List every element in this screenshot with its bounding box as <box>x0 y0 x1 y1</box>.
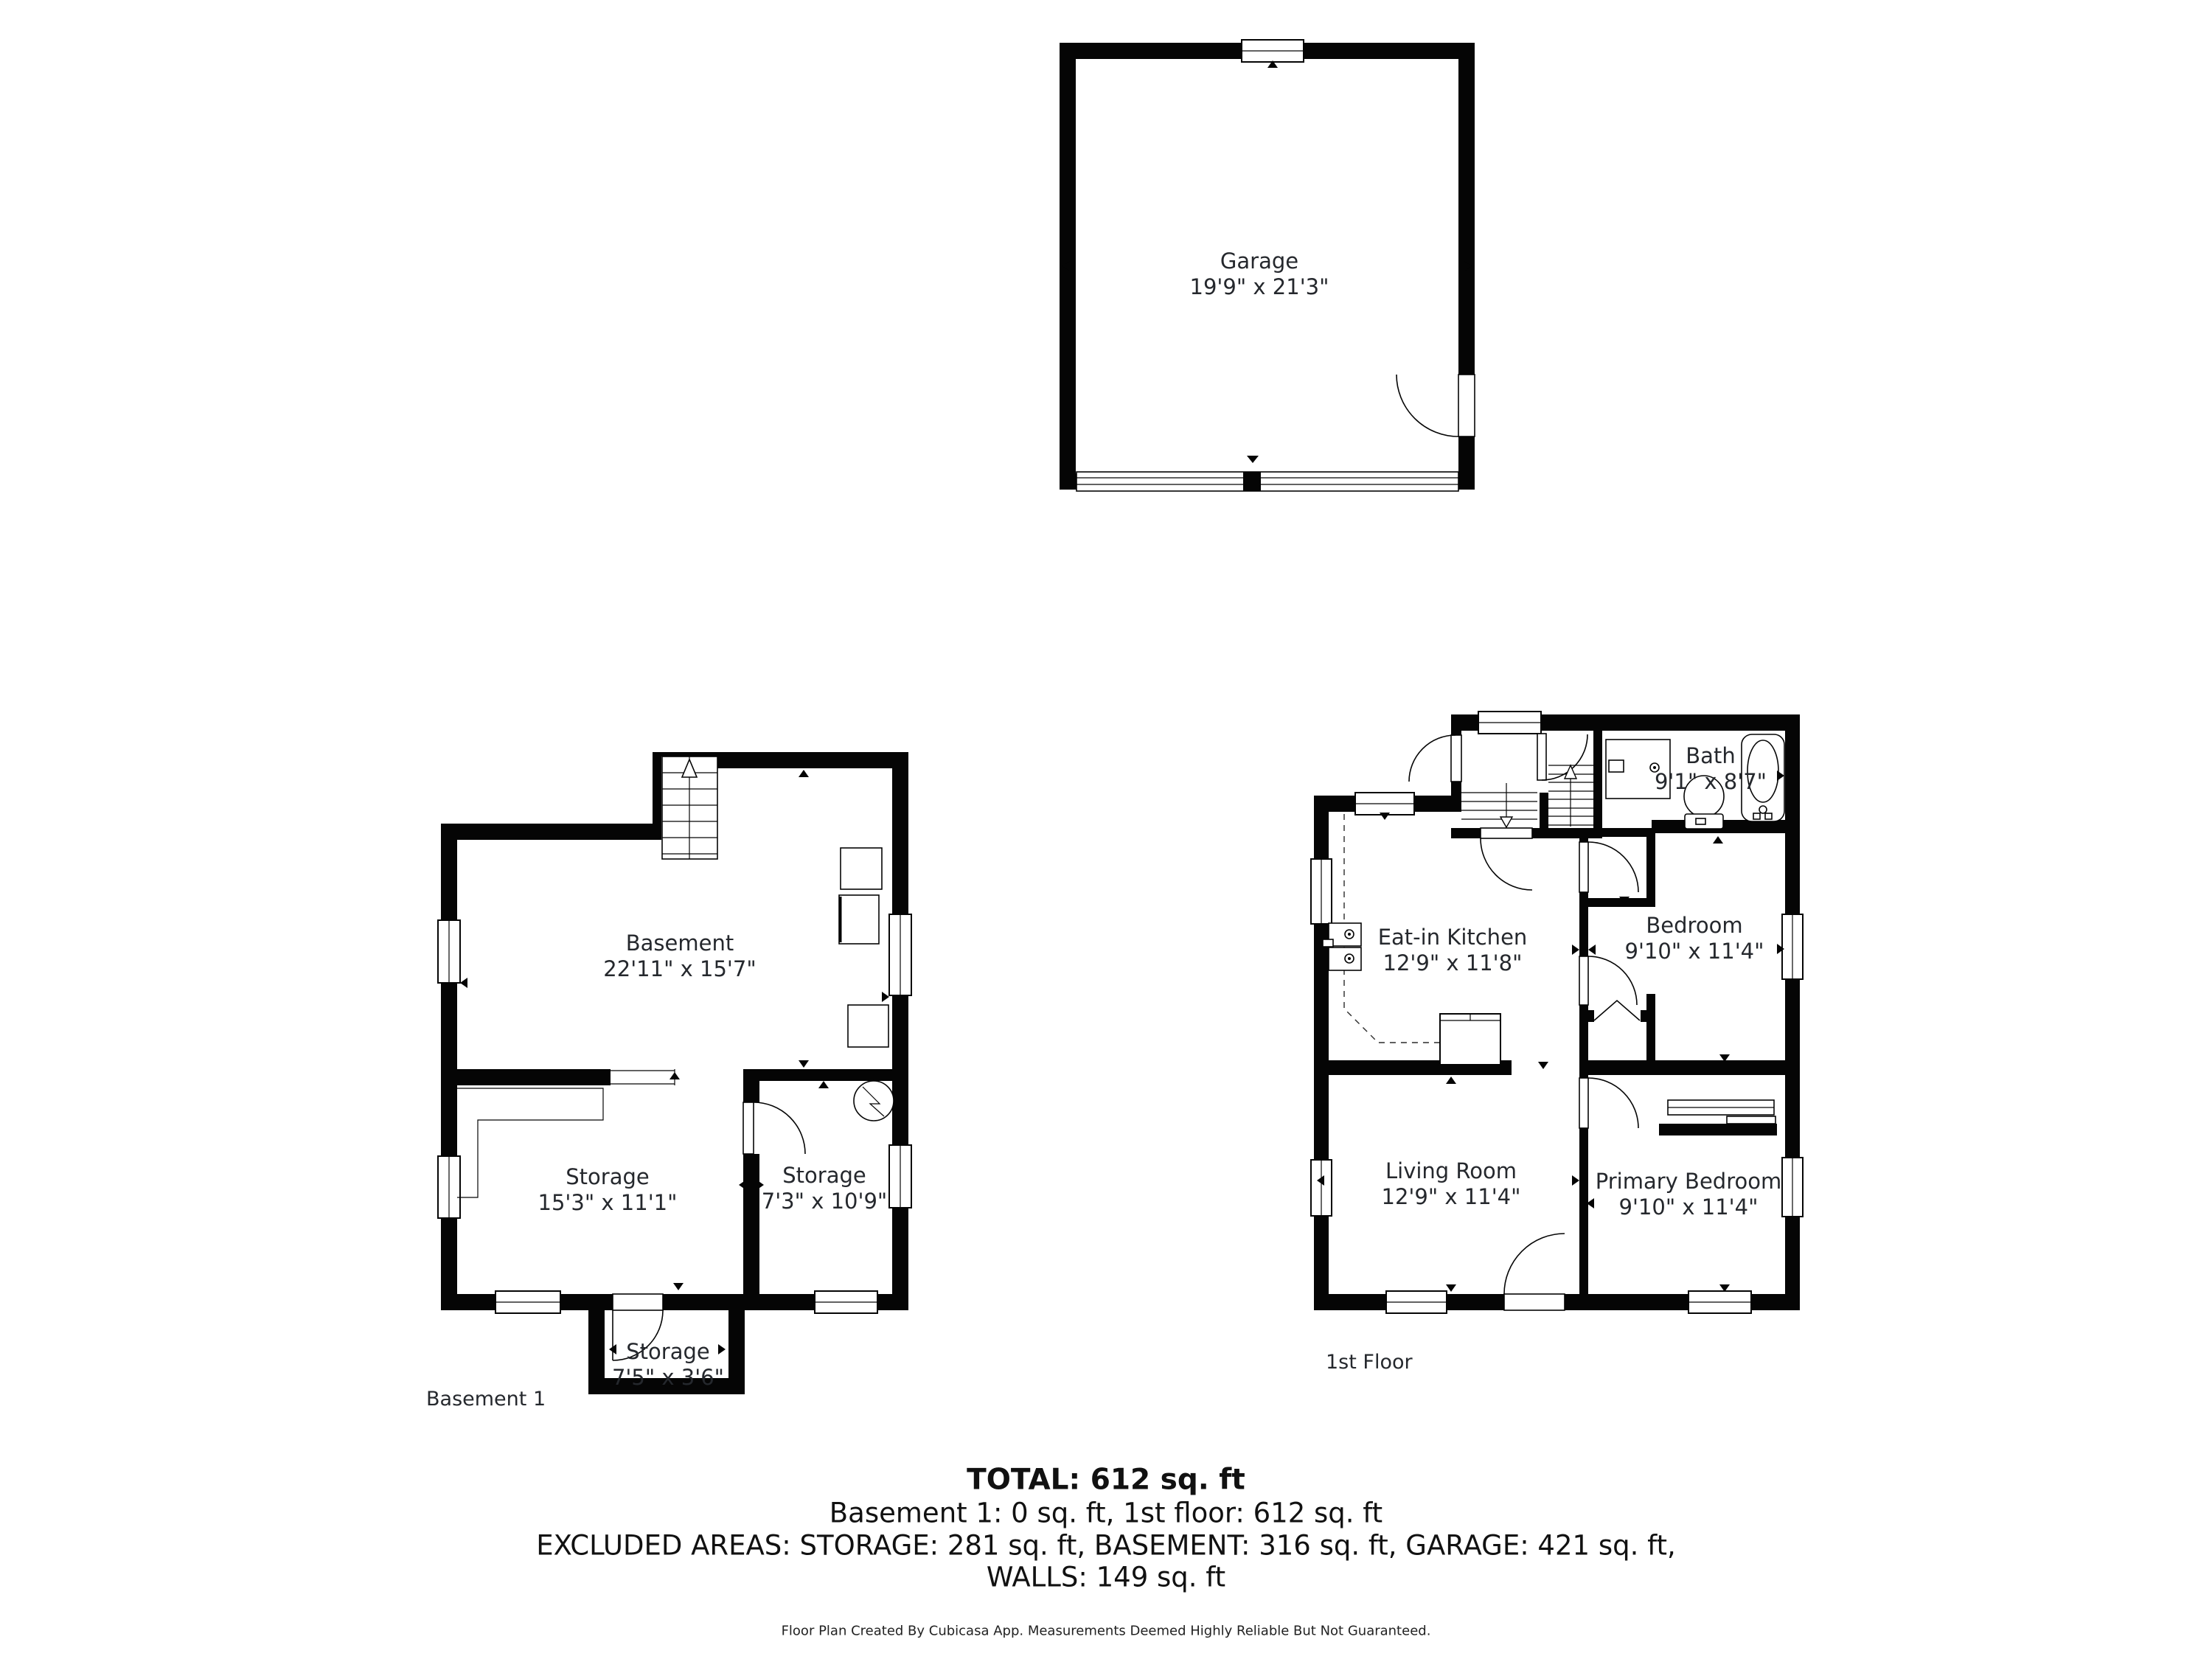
measure-tick <box>1572 945 1579 955</box>
summary-total: TOTAL: 612 sq. ft <box>0 1464 2212 1497</box>
room-label-kitchen: Eat-in Kitchen 12'9" x 11'8" <box>1378 925 1528 976</box>
floor-title-first-floor: 1st Floor <box>1326 1351 1413 1374</box>
floor-title-basement: Basement 1 <box>426 1388 546 1411</box>
front-door-icon <box>1409 735 1461 782</box>
measure-tick <box>1247 456 1259 463</box>
basement-window-icon <box>438 1156 460 1218</box>
window-icon <box>1688 1291 1751 1313</box>
stairs-down-icon <box>1461 783 1537 827</box>
window-icon <box>1355 793 1414 815</box>
measure-tick <box>669 1072 680 1079</box>
room-dims: 22'11" x 15'7" <box>603 956 756 982</box>
room-dims: 19'9" x 21'3" <box>1190 274 1329 300</box>
measure-tick <box>1380 813 1390 820</box>
room-label-storage-a: Storage 15'3" x 11'1" <box>538 1164 678 1216</box>
room-name: Living Room <box>1382 1158 1521 1184</box>
basement-window-icon <box>815 1291 877 1313</box>
room-dims: 9'1" x 8'7" <box>1655 769 1767 795</box>
room-name: Basement <box>603 931 756 956</box>
basement-window-icon <box>889 1145 911 1208</box>
summary-floors: Basement 1: 0 sq. ft, 1st floor: 612 sq.… <box>0 1498 2212 1529</box>
room-dims: 9'10" x 11'4" <box>1596 1194 1781 1220</box>
window-icon <box>1478 712 1541 734</box>
room-name: Storage <box>538 1164 678 1190</box>
living-room-exterior-door-icon <box>1504 1234 1565 1310</box>
measure-tick <box>1572 1175 1579 1186</box>
measure-tick <box>1446 1077 1456 1084</box>
measure-tick <box>739 1180 746 1190</box>
appliance-boxes <box>839 848 888 1047</box>
basement-stairs-icon <box>662 757 717 859</box>
cased-opening <box>611 1069 675 1085</box>
room-dims: 7'3" x 10'9" <box>762 1189 887 1214</box>
first-floor-plan <box>1311 712 1803 1313</box>
bifold-closet-door-icon <box>1588 1001 1646 1022</box>
room-label-storage-b: Storage 7'3" x 10'9" <box>762 1163 887 1214</box>
measure-tick <box>1588 945 1596 955</box>
room-label-basement: Basement 22'11" x 15'7" <box>603 931 756 982</box>
room-dims: 9'10" x 11'4" <box>1625 939 1764 964</box>
measure-tick <box>882 992 889 1002</box>
room-name: Storage <box>612 1339 724 1365</box>
measure-tick <box>673 1283 684 1290</box>
window-icon <box>1311 859 1332 924</box>
floor-plan-drawing <box>0 0 2212 1659</box>
room-name: Bath <box>1655 743 1767 769</box>
kitchen-island-icon <box>1440 1014 1500 1065</box>
room-name: Storage <box>762 1163 887 1189</box>
window-icon <box>1311 1160 1332 1216</box>
primary-bedroom-door-icon <box>1579 1078 1638 1128</box>
window-icon <box>1386 1291 1447 1313</box>
vestibule-door-icon <box>1537 734 1587 780</box>
storage-door-icon <box>743 1102 805 1154</box>
closet-shelf-icon <box>1668 1100 1775 1124</box>
room-name: Bedroom <box>1625 913 1764 939</box>
measure-tick <box>460 978 467 988</box>
garage-door-icon <box>1077 472 1458 491</box>
room-label-garage: Garage 19'9" x 21'3" <box>1190 248 1329 300</box>
summary-walls: WALLS: 149 sq. ft <box>0 1562 2212 1593</box>
measure-tick <box>1538 1062 1548 1069</box>
floor-plan-sheet: Garage 19'9" x 21'3" Basement 22'11" x 1… <box>0 0 2212 1659</box>
room-label-bath: Bath 9'1" x 8'7" <box>1655 743 1767 795</box>
measure-tick <box>1713 836 1723 844</box>
garage-top-window-icon <box>1242 40 1304 62</box>
kitchen-sink-icon <box>1323 923 1361 970</box>
room-dims: 12'9" x 11'8" <box>1378 950 1528 976</box>
attribution-note: Floor Plan Created By Cubicasa App. Meas… <box>0 1624 2212 1639</box>
water-heater-icon <box>854 1081 894 1121</box>
kitchen-door-icon <box>1481 828 1532 890</box>
room-label-living-room: Living Room 12'9" x 11'4" <box>1382 1158 1521 1210</box>
basement-window-icon <box>438 920 460 983</box>
stairs-up-icon <box>1548 765 1593 827</box>
room-dims: 15'3" x 11'1" <box>538 1190 678 1216</box>
window-icon <box>1782 914 1803 979</box>
basement-plan <box>438 752 911 1394</box>
summary-excluded-areas: EXCLUDED AREAS: STORAGE: 281 sq. ft, BAS… <box>0 1530 2212 1562</box>
room-label-storage-c: Storage 7'5" x 3'6" <box>612 1339 724 1391</box>
garage-side-door-icon <box>1397 375 1475 437</box>
basement-window-icon <box>889 914 911 995</box>
hall-door-icon <box>1579 842 1638 892</box>
measure-tick <box>1446 1284 1456 1292</box>
measure-tick <box>818 1081 829 1088</box>
room-name: Garage <box>1190 248 1329 274</box>
basement-window-icon <box>495 1291 560 1313</box>
measure-tick <box>799 770 809 777</box>
window-icon <box>1782 1158 1803 1217</box>
room-dims: 7'5" x 3'6" <box>612 1365 724 1391</box>
measure-tick <box>799 1060 809 1068</box>
room-name: Eat-in Kitchen <box>1378 925 1528 950</box>
room-label-primary-bedroom: Primary Bedroom 9'10" x 11'4" <box>1596 1169 1781 1220</box>
room-name: Primary Bedroom <box>1596 1169 1781 1194</box>
room-label-bedroom: Bedroom 9'10" x 11'4" <box>1625 913 1764 964</box>
room-dims: 12'9" x 11'4" <box>1382 1184 1521 1210</box>
